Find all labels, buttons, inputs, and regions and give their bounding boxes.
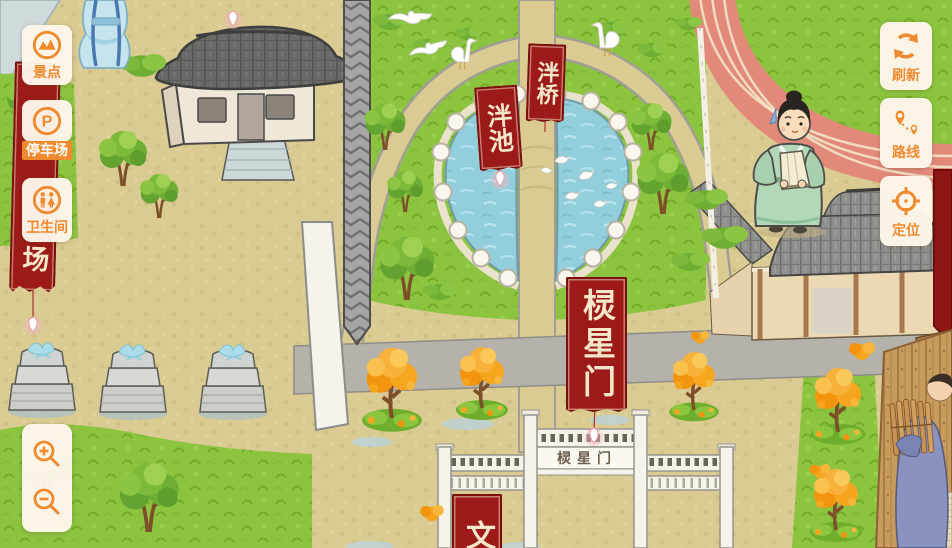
route-button[interactable]: 路线 — [880, 98, 932, 168]
scenic-spots-label: 景点 — [33, 64, 61, 80]
route-icon — [888, 105, 924, 141]
zoom-in-button[interactable] — [29, 436, 65, 472]
route-label: 路线 — [892, 144, 920, 160]
zoom-out-button[interactable] — [29, 484, 65, 520]
marker-lingxingmen[interactable]: 棂星门 — [566, 277, 627, 412]
marker-label: 棂星门 — [573, 288, 621, 402]
marker-label: 泮桥 — [529, 60, 563, 105]
wood-statue — [876, 330, 952, 548]
locate-button[interactable]: 定位 — [880, 176, 932, 246]
marker-panqiao[interactable]: 泮桥 — [526, 43, 567, 122]
marker-panchi[interactable]: 泮池 — [474, 85, 523, 172]
zoom-in-icon — [30, 437, 64, 471]
marker-label: 场 — [13, 244, 53, 272]
restroom-icon — [31, 184, 63, 216]
scenic-spots-button[interactable]: 景点 — [22, 25, 72, 85]
brick-wall — [344, 0, 370, 344]
parking-icon: P — [31, 105, 63, 137]
refresh-icon — [888, 28, 924, 64]
locate-icon — [888, 183, 924, 219]
scenic-icon — [31, 29, 63, 61]
map-illustration: 棂星门 — [0, 0, 952, 548]
svg-text:P: P — [42, 114, 53, 131]
map-canvas[interactable]: 棂星门 — [0, 0, 952, 548]
marker-label: 文 — [455, 520, 499, 548]
marker-partial-left[interactable]: 场 — [9, 61, 61, 292]
marker-partial-bottom[interactable]: 文 — [452, 494, 502, 548]
stone-fountains — [8, 343, 267, 420]
parking-button[interactable]: P 停车场 — [22, 100, 72, 142]
refresh-label: 刷新 — [892, 67, 920, 83]
gate-plaque-text: 棂星门 — [557, 450, 617, 467]
marker-label: 泮池 — [479, 102, 518, 154]
banner-sliver-right — [934, 170, 952, 336]
locate-label: 定位 — [892, 222, 920, 238]
refresh-button[interactable]: 刷新 — [880, 22, 932, 90]
statue-blue — [79, 0, 129, 68]
restroom-button[interactable]: 卫生间 — [22, 178, 72, 242]
parking-label: 停车场 — [22, 141, 72, 160]
restroom-label: 卫生间 — [26, 219, 68, 235]
zoom-control — [22, 424, 72, 532]
zoom-out-icon — [30, 485, 64, 519]
